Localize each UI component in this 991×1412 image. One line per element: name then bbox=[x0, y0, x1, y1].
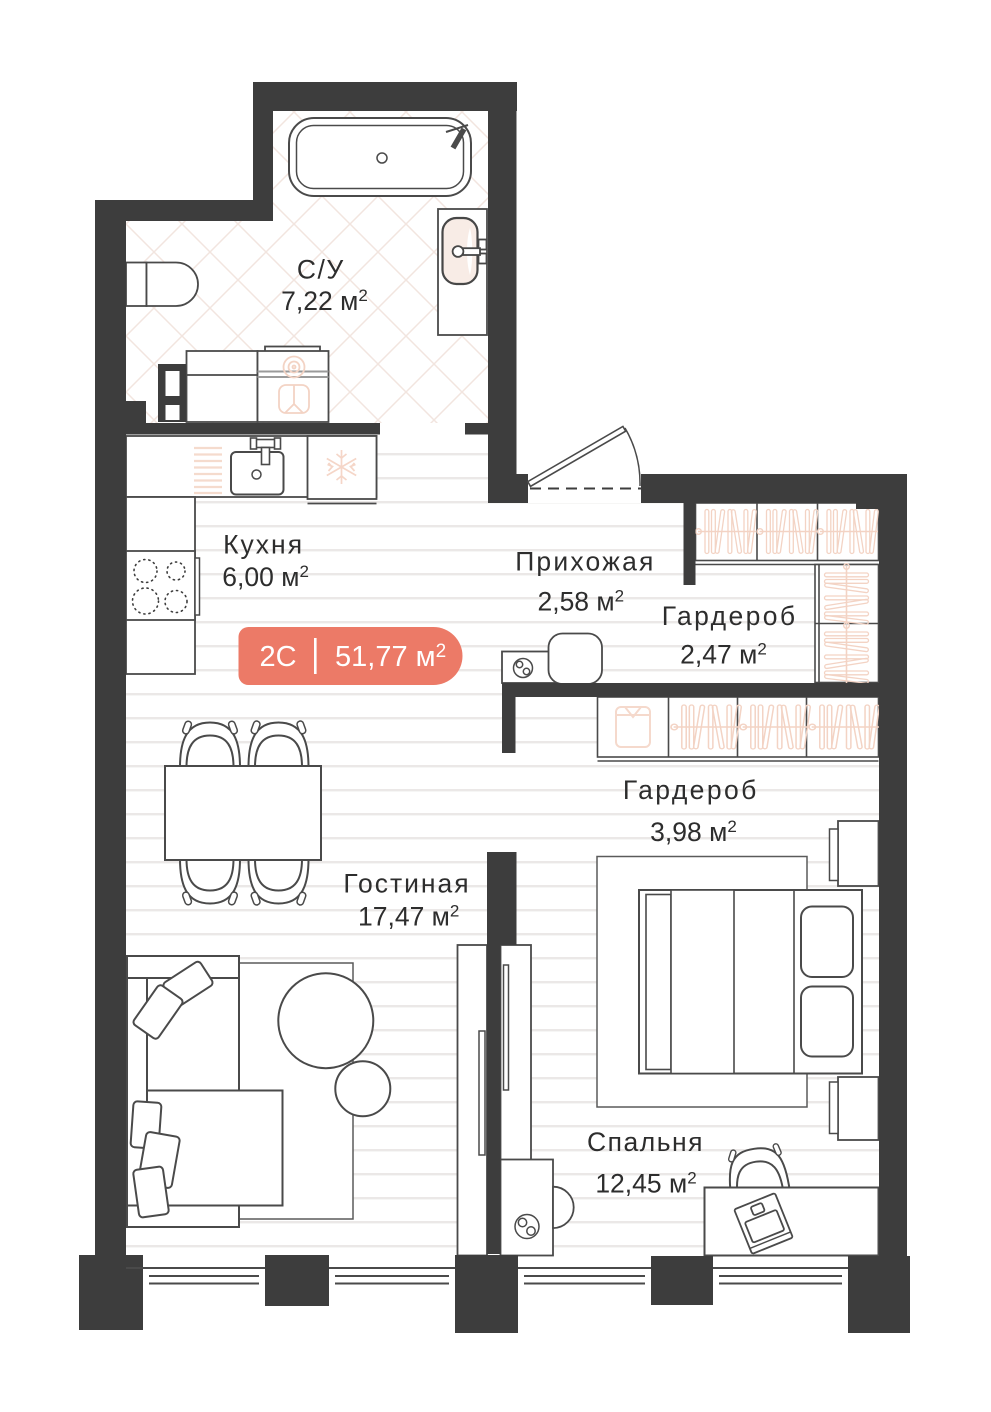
svg-text:Прихожая: Прихожая bbox=[515, 547, 655, 577]
svg-text:2,58 м2: 2,58 м2 bbox=[537, 587, 624, 617]
svg-text:Кухня: Кухня bbox=[223, 530, 304, 560]
svg-text:7,22 м2: 7,22 м2 bbox=[281, 286, 368, 316]
svg-text:12,45 м2: 12,45 м2 bbox=[595, 1169, 696, 1199]
svg-text:2,47 м2: 2,47 м2 bbox=[680, 640, 767, 670]
svg-text:51,77 м2: 51,77 м2 bbox=[335, 641, 446, 673]
svg-text:Гардероб: Гардероб bbox=[662, 601, 798, 631]
svg-text:6,00 м2: 6,00 м2 bbox=[222, 562, 309, 592]
svg-text:С/У: С/У bbox=[297, 255, 345, 285]
svg-text:2С: 2С bbox=[259, 641, 296, 673]
svg-text:Спальня: Спальня bbox=[587, 1127, 704, 1157]
svg-text:Гардероб: Гардероб bbox=[623, 775, 759, 805]
svg-text:3,98 м2: 3,98 м2 bbox=[650, 817, 737, 847]
svg-text:17,47 м2: 17,47 м2 bbox=[358, 902, 459, 932]
svg-text:Гостиная: Гостиная bbox=[343, 869, 470, 899]
